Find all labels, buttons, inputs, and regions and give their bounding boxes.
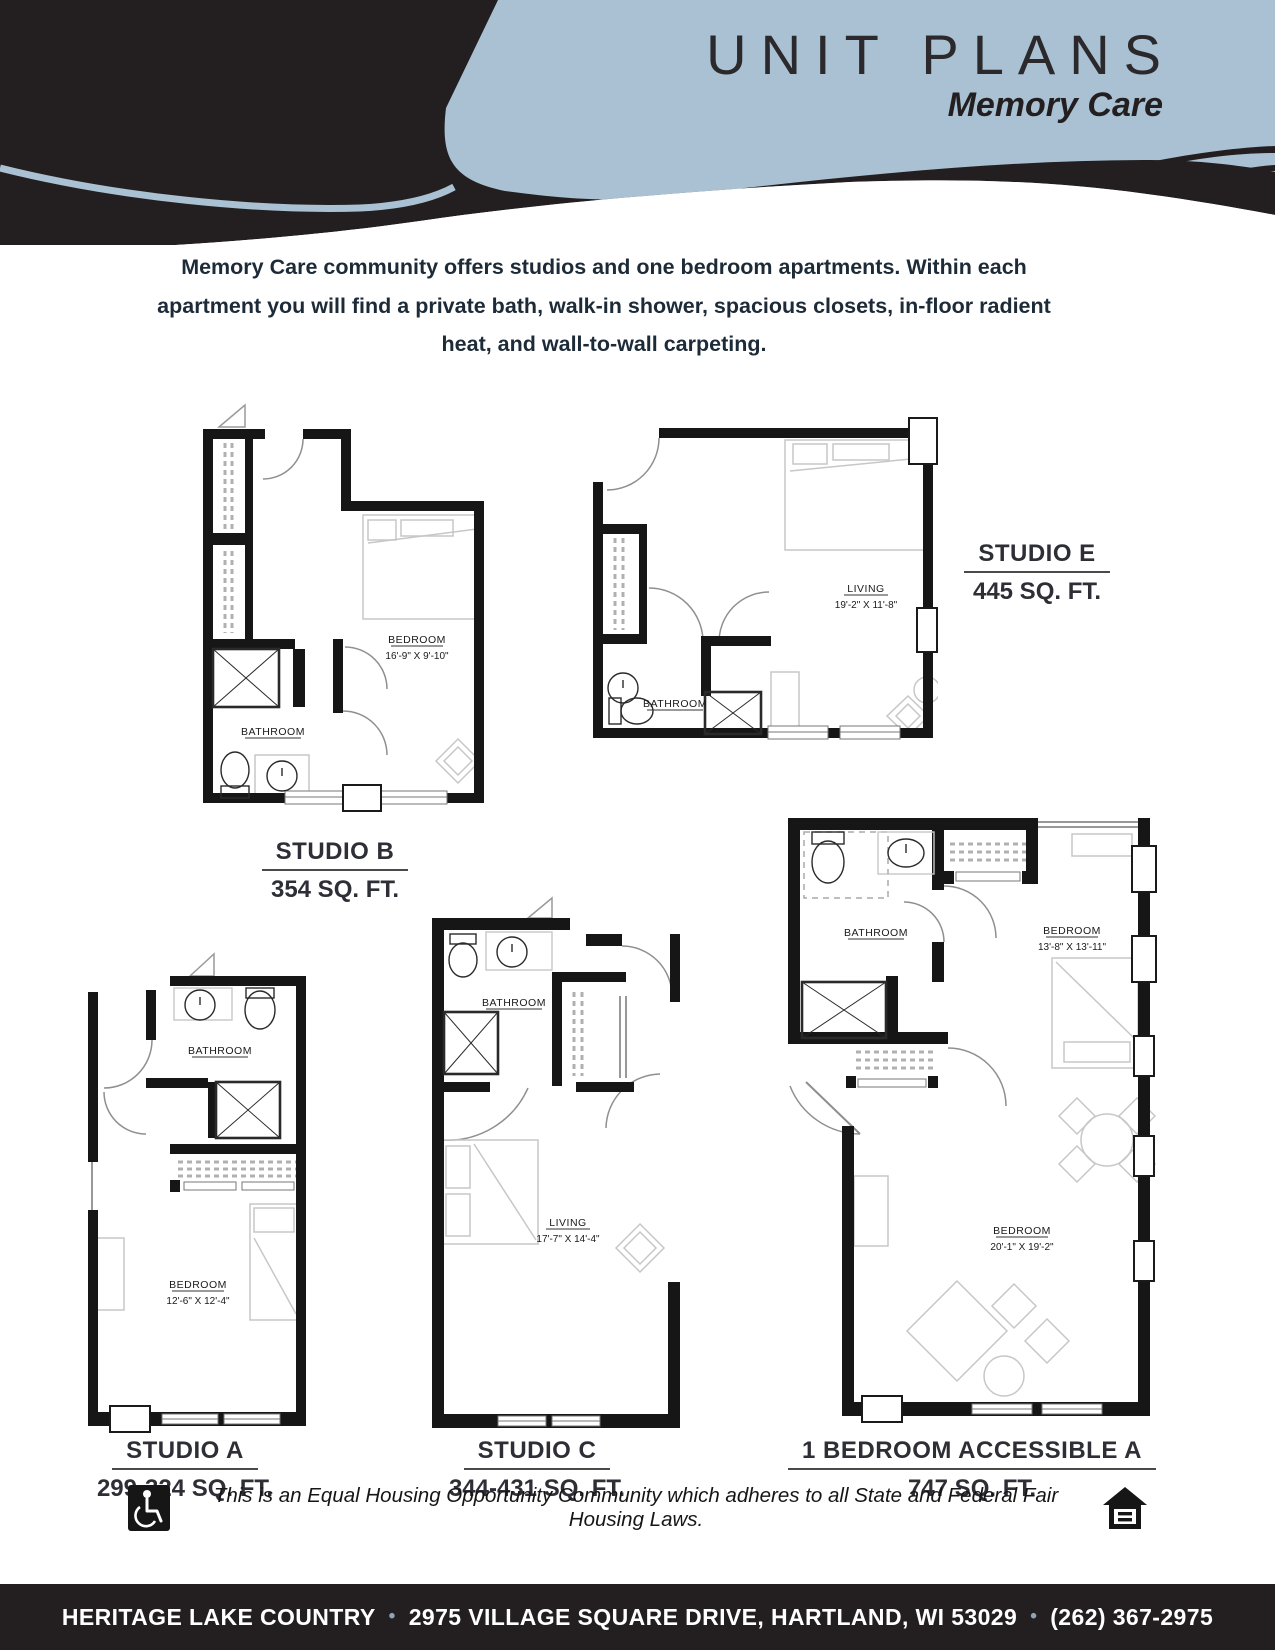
- studio-e-caption: STUDIO E 445 SQ. FT.: [887, 540, 1187, 606]
- studio-b-bedroom-label: BEDROOM: [388, 634, 446, 646]
- studio-b-caption: STUDIO B 354 SQ. FT.: [185, 838, 485, 904]
- studio-a-bath-fixtures: [174, 988, 280, 1138]
- one-br-bedroom2-label: BEDROOM: [993, 1225, 1051, 1237]
- equal-housing-icon: [1102, 1485, 1148, 1531]
- studio-e-bathroom-label: BATHROOM: [643, 698, 707, 710]
- studio-b-name: STUDIO B: [262, 838, 409, 871]
- one-br-accessible-clearance: [804, 832, 888, 898]
- studio-a-walls: [88, 976, 306, 1426]
- studio-a-name: STUDIO A: [112, 1437, 258, 1470]
- studio-e-name: STUDIO E: [964, 540, 1109, 573]
- studio-e-floorplan: LIVING 19'-2" X 11'-8" BATHROOM: [563, 396, 938, 748]
- studio-e-closet: [615, 538, 623, 630]
- page-title: UNIT PLANS: [706, 22, 1175, 87]
- studio-c-name: STUDIO C: [464, 1437, 611, 1470]
- studio-e-area: 445 SQ. FT.: [887, 578, 1187, 606]
- one-br-furniture: [854, 834, 1155, 1396]
- studio-a-floorplan: BATHROOM BEDROOM 12'-6" X 12'-4": [82, 946, 332, 1434]
- footer-phone: (262) 367-2975: [1050, 1604, 1213, 1631]
- accessibility-icon: [128, 1485, 170, 1531]
- one-br-bedroom1-label: BEDROOM: [1043, 925, 1101, 937]
- studio-c-walls: [432, 918, 680, 1428]
- studio-e-doors: [607, 438, 769, 642]
- header-banner: UNIT PLANS Memory Care: [0, 0, 1275, 245]
- page-subtitle: Memory Care: [948, 86, 1163, 125]
- studio-e-living-label: LIVING: [847, 583, 884, 595]
- unit-plans-flyer: UNIT PLANS Memory Care Memory Care commu…: [0, 0, 1275, 1650]
- studio-c-living-dims: 17'-7" X 14'-4": [536, 1234, 600, 1245]
- one-br-name: 1 BEDROOM ACCESSIBLE A: [788, 1437, 1156, 1470]
- footer-address: 2975 VILLAGE SQUARE DRIVE, HARTLAND, WI …: [409, 1604, 1017, 1631]
- disclaimer-text: This is an Equal Housing Opportunity Com…: [170, 1484, 1102, 1532]
- footer-bar: HERITAGE LAKE COUNTRY • 2975 VILLAGE SQU…: [0, 1584, 1275, 1650]
- one-br-bedroom1-dims: 13'-8" X 13'-11": [1038, 942, 1106, 953]
- studio-c-floorplan: BATHROOM LIVING 17'-7" X 14'-4": [428, 896, 693, 1431]
- footer-community-name: HERITAGE LAKE COUNTRY: [62, 1604, 376, 1631]
- studio-a-bathroom-label: BATHROOM: [188, 1045, 252, 1057]
- footer-bullet: •: [389, 1606, 396, 1628]
- one-br-bedroom2-dims: 20'-1" X 19'-2": [990, 1242, 1054, 1253]
- studio-a-bedroom-label: BEDROOM: [169, 1279, 227, 1291]
- studio-a-closet: [178, 1162, 298, 1176]
- studio-b-walls: [203, 429, 484, 803]
- fair-housing-disclaimer: This is an Equal Housing Opportunity Com…: [128, 1482, 1148, 1534]
- intro-paragraph: Memory Care community offers studios and…: [134, 248, 1074, 364]
- studio-c-bathroom-label: BATHROOM: [482, 997, 546, 1009]
- studio-b-floorplan: BEDROOM 16'-9" X 9'-10" BATHROOM: [195, 393, 490, 818]
- footer-bullet: •: [1030, 1606, 1037, 1628]
- one-bedroom-accessible-a-floorplan: BATHROOM BEDROOM 13'-8" X 13'-11" BEDROO…: [742, 786, 1162, 1431]
- studio-c-closet: [574, 992, 582, 1076]
- studio-b-bedroom-dims: 16'-9" X 9'-10": [385, 651, 449, 662]
- one-br-bathroom-label: BATHROOM: [844, 927, 908, 939]
- studio-b-bathroom-label: BATHROOM: [241, 726, 305, 738]
- studio-c-furniture: [442, 1140, 664, 1272]
- studio-c-living-label: LIVING: [549, 1217, 586, 1229]
- studio-a-bedroom-dims: 12'-6" X 12'-4": [166, 1296, 230, 1307]
